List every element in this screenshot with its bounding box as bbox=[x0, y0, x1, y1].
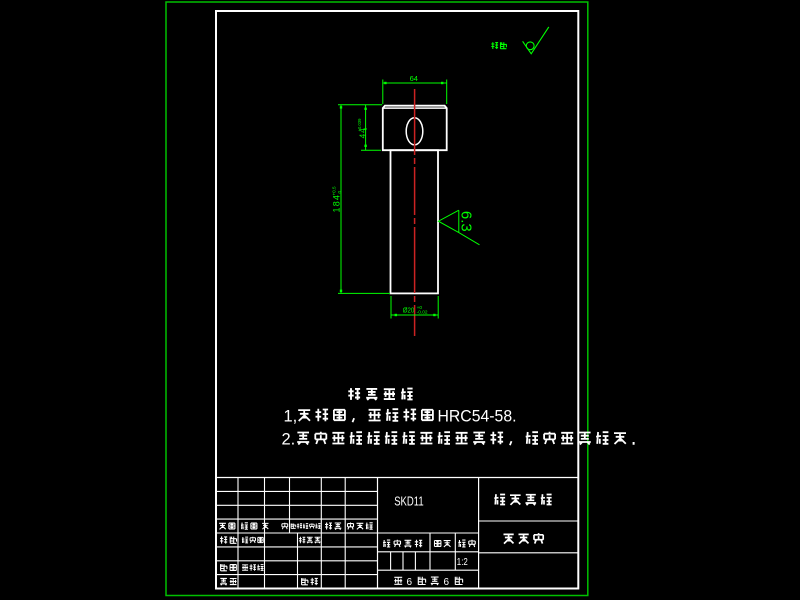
svg-text:6.3: 6.3 bbox=[458, 211, 475, 232]
svg-text:6: 6 bbox=[407, 577, 413, 588]
svg-text:64: 64 bbox=[410, 74, 418, 83]
svg-text:0: 0 bbox=[337, 191, 342, 194]
svg-text:2.: 2. bbox=[282, 431, 296, 449]
svg-text:1,: 1, bbox=[284, 408, 298, 426]
svg-text:6: 6 bbox=[444, 577, 450, 588]
svg-text:184: 184 bbox=[332, 194, 342, 213]
svg-text:+0.5: +0.5 bbox=[332, 186, 337, 196]
svg-text:+0.039: +0.039 bbox=[357, 118, 362, 132]
svg-text:HRC54-58.: HRC54-58. bbox=[438, 408, 517, 426]
svg-text:Ø20: Ø20 bbox=[403, 306, 415, 315]
svg-text:-0.02: -0.02 bbox=[417, 310, 428, 316]
svg-text:SKD11: SKD11 bbox=[394, 494, 424, 508]
svg-text:1:2: 1:2 bbox=[457, 556, 468, 568]
